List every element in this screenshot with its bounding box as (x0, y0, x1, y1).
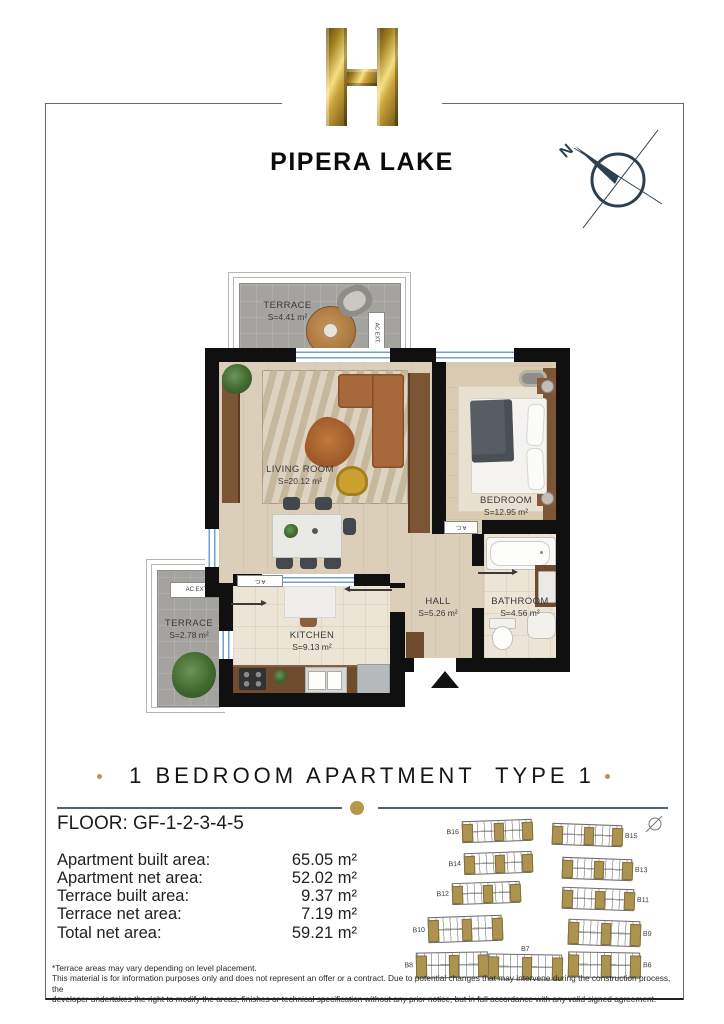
sofa-right-section (372, 374, 404, 468)
area-label: Terrace net area: (57, 905, 182, 924)
page-title: 1 BEDROOM APARTMENT TYPE 1 (0, 763, 724, 789)
room-label-living: LIVING ROOMS=20.12 m² (240, 464, 360, 487)
wall-segment (556, 348, 570, 672)
terrace-table-item (323, 323, 338, 338)
brand-logo-h-icon (326, 28, 398, 126)
area-label: Apartment built area: (57, 851, 210, 870)
brochure-page: PIPERA LAKE N AC EXT. TERRACES=4.41 m² A… (0, 0, 724, 1024)
table-decor (312, 528, 318, 534)
building-label: B14 (448, 861, 461, 868)
room-label-bedroom: BEDROOMS=12.95 m² (458, 495, 554, 518)
wall-segment (219, 693, 405, 707)
building-gold-segment (622, 862, 634, 880)
area-row: Apartment net area:52.02 m² (57, 869, 357, 888)
area-row: Terrace built area:9.37 m² (57, 887, 357, 906)
wall-segment (482, 520, 570, 534)
room-label-terrace-top: TERRACES=4.41 m² (250, 300, 325, 323)
bathtub-drain (540, 551, 543, 554)
stove (239, 668, 266, 690)
logo-bar-left (326, 28, 347, 126)
bedside-lamp (541, 380, 554, 393)
dining-chair (283, 497, 300, 510)
building-gold-segment (612, 828, 624, 846)
siteplan-building: B11 (562, 887, 635, 911)
siteplan-compass-icon (644, 814, 664, 834)
building-gold-segment (428, 920, 440, 942)
window (205, 529, 219, 567)
wall-segment (432, 348, 446, 534)
divider-dot (350, 801, 364, 815)
building-gold-segment (494, 823, 505, 841)
footer-line: This material is for information purpose… (52, 973, 680, 994)
siteplan-building: B15 (552, 823, 623, 847)
area-value: 9.37 m² (301, 887, 357, 906)
compass-north-icon: N (552, 128, 672, 233)
building-label: B12 (436, 891, 449, 898)
building-gold-segment (562, 860, 574, 878)
sink-basin (327, 671, 342, 690)
divider-line-right (378, 807, 668, 809)
building-gold-segment (522, 854, 534, 872)
building-label: B11 (637, 897, 649, 904)
toilet-bowl (492, 626, 513, 650)
hall-cabinet (406, 632, 424, 658)
room-label-terrace-left: TERRACES=2.78 m² (155, 618, 223, 641)
building-gold-segment (601, 923, 612, 945)
siteplan-building: B12 (452, 881, 521, 905)
building-label: B13 (635, 867, 648, 874)
door-arrow (350, 589, 392, 591)
building-label: B10 (412, 927, 425, 934)
logo-bar-cross (347, 69, 377, 86)
wall-segment (405, 658, 414, 672)
pillow (526, 448, 545, 491)
building-label: B9 (643, 931, 652, 938)
living-shelf-unit (222, 375, 240, 503)
building-gold-segment (492, 918, 504, 940)
area-label: Terrace built area: (57, 887, 189, 906)
building-label: B15 (625, 833, 638, 840)
siteplan-building: B13 (562, 857, 633, 881)
building-gold-segment (595, 891, 606, 909)
room-label-kitchen: KITCHENS=9.13 m² (262, 630, 362, 653)
area-row: Apartment built area:65.05 m² (57, 851, 357, 870)
pillow (526, 404, 545, 447)
room-label-bathroom: BATHROOMS=4.56 m² (478, 596, 562, 619)
building-gold-segment (464, 856, 476, 874)
building-gold-segment (462, 919, 473, 941)
building-gold-segment (594, 861, 605, 879)
building-label: B16 (446, 829, 459, 836)
footer-line: *Terrace areas may vary depending on lev… (52, 963, 680, 973)
area-value: 65.05 m² (292, 851, 357, 870)
fridge (357, 664, 390, 695)
building-gold-segment (452, 886, 464, 904)
ac-box: A.C. (444, 521, 478, 534)
building-gold-segment (568, 922, 580, 944)
siteplan: B16B15B14B13B12B11B10B9B8B7B6 (400, 812, 692, 988)
footer-line: developer undertakes the right to modify… (52, 994, 680, 1004)
window (296, 348, 390, 362)
compass-north-label: N (557, 141, 577, 161)
wall-segment (390, 612, 405, 707)
bed-blanket (470, 399, 514, 462)
wardrobe (408, 373, 430, 533)
siteplan-building: B16 (462, 819, 533, 843)
building-gold-segment (562, 890, 574, 908)
kitchen-table (284, 586, 336, 618)
siteplan-building: B10 (428, 915, 503, 944)
dining-table (272, 514, 342, 558)
building-gold-segment (462, 824, 474, 842)
wall-segment (390, 583, 405, 588)
divider-line-left (57, 807, 342, 809)
area-row: Total net area:59.21 m² (57, 924, 357, 943)
floor-label: FLOOR: GF-1-2-3-4-5 (57, 813, 244, 835)
siteplan-building: B14 (464, 851, 533, 875)
ac-box: A.C. (237, 575, 283, 587)
building-gold-segment (624, 892, 636, 910)
building-gold-segment (630, 924, 642, 946)
siteplan-building: B9 (568, 919, 641, 947)
window (436, 348, 514, 362)
building-gold-segment (522, 822, 534, 840)
wall-segment (472, 608, 484, 658)
dining-chair (343, 518, 356, 535)
door-arrow (231, 603, 261, 605)
area-label: Apartment net area: (57, 869, 203, 888)
sink-basin (308, 671, 326, 690)
entrance-arrow-icon (431, 671, 459, 688)
area-value: 52.02 m² (292, 869, 357, 888)
building-gold-segment (495, 855, 506, 873)
window (219, 631, 233, 659)
building-gold-segment (552, 826, 564, 844)
dining-chair (315, 497, 332, 510)
logo-bar-right (377, 28, 398, 126)
door-arrow (478, 572, 512, 574)
footer-disclaimer: *Terrace areas may vary depending on lev… (52, 963, 680, 1004)
area-value: 7.19 m² (301, 905, 357, 924)
wall-segment (456, 658, 570, 672)
area-row: Terrace net area:7.19 m² (57, 905, 357, 924)
building-gold-segment (483, 885, 494, 903)
area-value: 59.21 m² (292, 924, 357, 943)
building-label: B7 (521, 946, 530, 953)
area-label: Total net area: (57, 924, 162, 943)
wall-segment (472, 534, 484, 566)
building-gold-segment (510, 884, 522, 902)
room-label-hall: HALLS=5.26 m² (404, 596, 472, 619)
building-gold-segment (584, 827, 595, 845)
